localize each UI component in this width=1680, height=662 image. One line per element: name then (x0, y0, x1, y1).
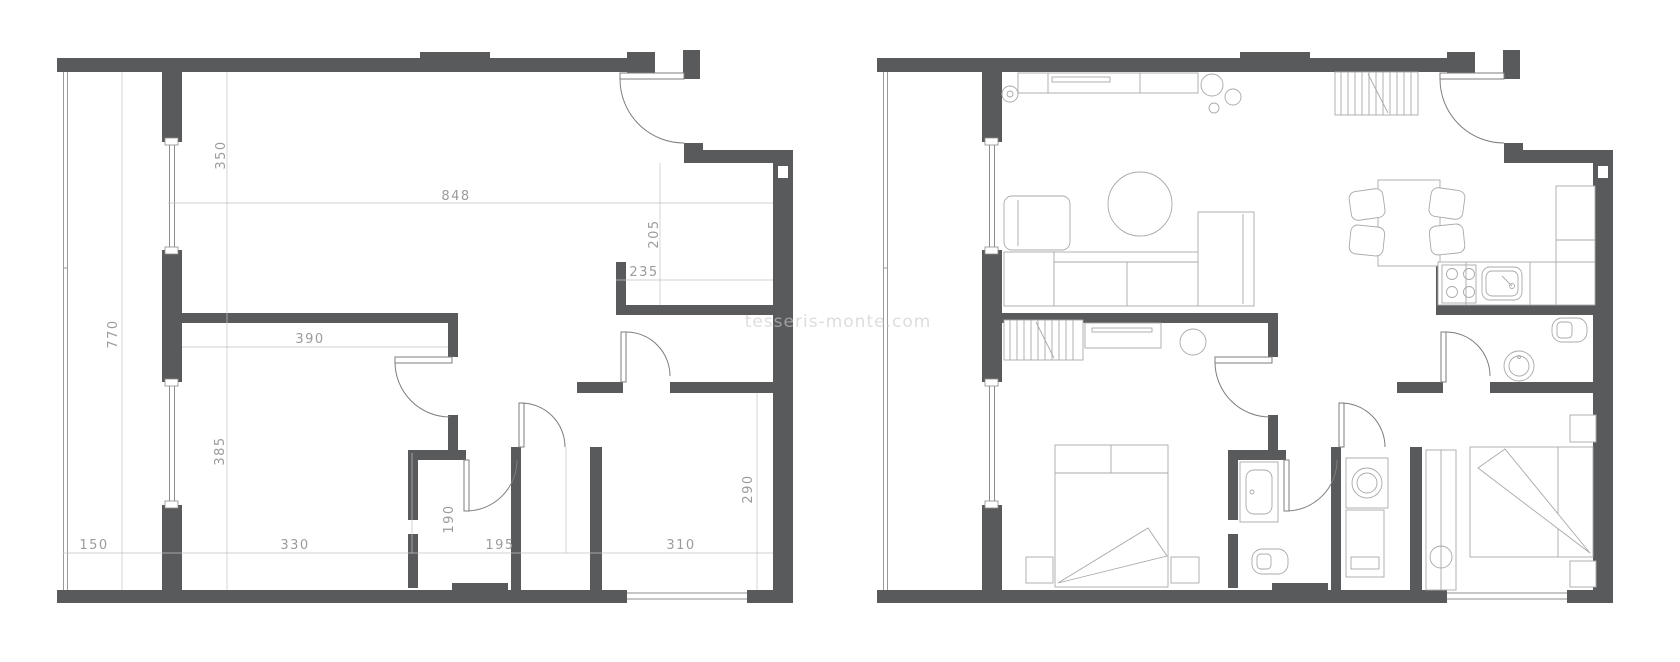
wardrobe (1426, 450, 1456, 590)
staircase-hall (1004, 320, 1083, 360)
rug (1108, 172, 1172, 236)
dim-385: 385 (213, 436, 228, 465)
dining-table (1378, 180, 1440, 266)
staircase-entry (1335, 72, 1418, 115)
dim-150: 150 (79, 538, 108, 553)
armchair (1004, 196, 1070, 250)
dim-195: 195 (485, 538, 514, 553)
console-with-mirror (1085, 323, 1206, 355)
nightstand (1171, 557, 1199, 583)
refrigerator (1556, 186, 1595, 262)
plants (1201, 74, 1241, 113)
dim-770: 770 (106, 319, 121, 348)
washing-machine (1346, 458, 1388, 508)
wc-washbasin (1504, 351, 1534, 381)
double-bed-right (1470, 447, 1593, 557)
floorplan-page: 848 350 205 235 770 390 385 290 150 330 … (0, 0, 1680, 662)
wc-toilet (1552, 318, 1587, 342)
dim-205: 205 (647, 219, 662, 248)
floor-lamp (1002, 86, 1018, 102)
chaise-longue (1198, 212, 1254, 306)
bathroom-vanity (1240, 462, 1278, 522)
dim-330: 330 (280, 538, 309, 553)
side-table (1004, 252, 1054, 306)
dim-350: 350 (214, 140, 229, 169)
floorplan-canvas: 848 350 205 235 770 390 385 290 150 330 … (0, 0, 1680, 662)
dim-310: 310 (666, 538, 695, 553)
left-plan: 848 350 205 235 770 390 385 290 150 330 … (57, 50, 793, 603)
tv-sideboard (1018, 73, 1198, 93)
utility-unit (1346, 510, 1384, 577)
nightstand (1570, 561, 1596, 587)
dim-190: 190 (442, 504, 457, 533)
watermark: tesseris-monte.com (745, 312, 932, 332)
dim-235: 235 (629, 265, 658, 280)
nightstand (1026, 557, 1053, 583)
dim-290: 290 (741, 474, 756, 503)
dim-390: 390 (295, 332, 324, 347)
toilet (1252, 549, 1288, 574)
dim-848: 848 (441, 189, 470, 204)
double-bed-left (1055, 445, 1168, 587)
nightstand (1570, 415, 1596, 442)
kitchen-sink (1482, 267, 1522, 300)
